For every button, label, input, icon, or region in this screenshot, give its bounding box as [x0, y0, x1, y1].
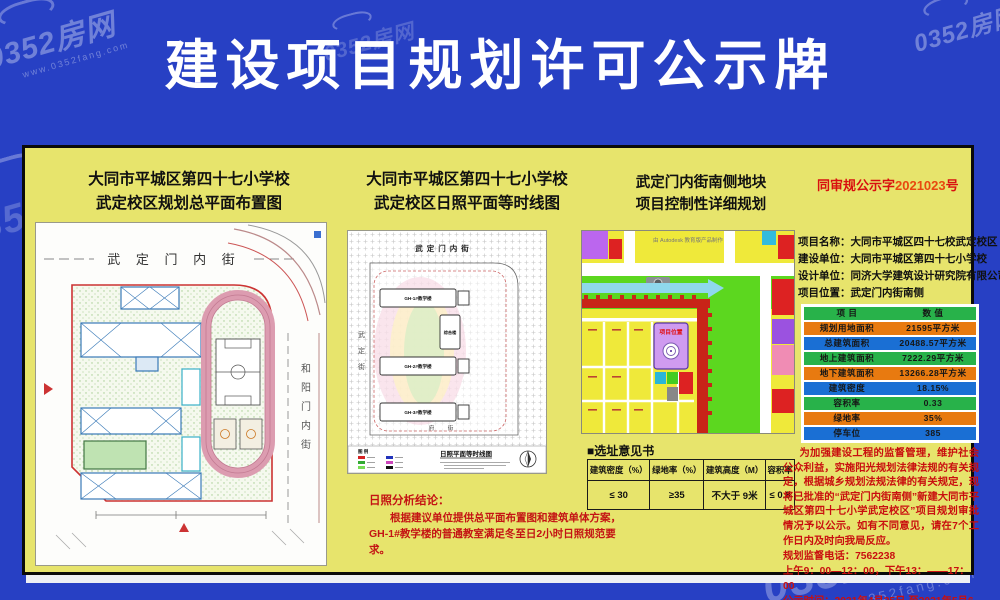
building-label-complex: 综合楼	[444, 329, 457, 336]
metrics-header-item: 项 目	[804, 307, 890, 320]
sunshine-conclusion-title: 日照分析结论：	[369, 492, 621, 508]
metric-value: 7222.29平方米	[890, 352, 976, 365]
table-row: 容积率 0.33	[804, 397, 976, 410]
opinion-value: ≤ 30	[588, 481, 650, 510]
metric-value: 13266.28平方米	[890, 367, 976, 380]
notice-hours: 上午9：00—12：00，下午13：——17：00	[783, 565, 979, 595]
sunshine-conclusion: 日照分析结论： 根据建议单位提供总平面布置图和建筑单体方案，GH-1#教学楼的普…	[369, 492, 621, 558]
page-title: 建设项目规划许可公示牌	[0, 24, 1000, 108]
opinion-value: 不大于 9米	[704, 481, 766, 510]
info-line-owner: 建设单位：大同市平城区第四十七小学校	[798, 251, 988, 268]
notice-phone: 规划监督电话：7562238	[783, 550, 979, 565]
legend-strip: 图 例 日照平面等时线图	[348, 446, 546, 473]
metric-value: 20488.57平方米	[890, 337, 976, 350]
sunshine-svg: 武定门内街 GH-1#教学楼 综合楼	[348, 231, 546, 473]
metric-label: 地下建筑面积	[804, 367, 890, 380]
table-row: 规划用地面积 21595平方米	[804, 322, 976, 335]
public-notice: 为加强建设工程的监督管理，维护社会公众利益，实施阳光规划法律法规的有关规定，根据…	[783, 447, 979, 600]
notice-period: 公示时间：2021年4月25日 至2021年5月6日	[783, 595, 979, 600]
table-row: 总建筑面积 20488.57平方米	[804, 337, 976, 350]
zoning-map: 由 Autodesk 教育版产品制作	[581, 230, 795, 434]
metric-value: 35%	[890, 412, 976, 425]
info-line-name: 项目名称：大同市平城区四十七校武定校区	[798, 234, 988, 251]
metric-value: 18.15%	[890, 382, 976, 395]
left-heading-line2: 武定校区规划总平面布置图	[43, 192, 335, 216]
street-label-right: 和阳门内街	[299, 363, 311, 458]
metric-value: 385	[890, 427, 976, 440]
car-swoosh-icon	[921, 0, 970, 20]
metric-label: 总建筑面积	[804, 337, 890, 350]
site-plan-svg: 武 定 门 内 街	[36, 223, 326, 565]
permit-prefix: 同审规公示字	[817, 178, 895, 193]
metric-label: 停车位	[804, 427, 890, 440]
table-row: 地上建筑面积 7222.29平方米	[804, 352, 976, 365]
opinion-value: ≥35	[650, 481, 704, 510]
notice-body: 为加强建设工程的监督管理，维护社会公众利益，实施阳光规划法律法规的有关规定，根据…	[783, 447, 979, 549]
sunshine-diagram: 武定门内街 GH-1#教学楼 综合楼	[347, 230, 547, 474]
metric-value: 0.33	[890, 397, 976, 410]
north-arrow-icon	[520, 451, 536, 467]
site-opinion-value-row: ≤ 30 ≥35 不大于 9米 ≤ 0.8	[588, 481, 795, 510]
building-label-gh3: GH-3#教学楼	[404, 409, 432, 416]
right-heading-line2: 项目控制性详细规划	[591, 194, 811, 216]
building-label-gh2: GH-2#教学楼	[404, 363, 432, 370]
project-site-label: 项目位置	[659, 328, 682, 336]
street-label-top: 武定门内街	[415, 243, 473, 253]
permit-number-stamp: 同审规公示字2021023号	[817, 175, 995, 194]
metric-label: 绿地率	[804, 412, 890, 425]
street-label-bottom: 府 街	[429, 424, 460, 432]
site-opinion-header-row: 建筑密度（%） 绿地率（%） 建筑高度（M） 容积率	[588, 460, 795, 481]
site-opinion-title: ■选址意见书	[587, 442, 654, 459]
legend-label: 图 例	[358, 448, 369, 455]
metric-label: 容积率	[804, 397, 890, 410]
opinion-header: 建筑密度（%）	[588, 460, 650, 481]
opinion-header: 建筑高度（M）	[704, 460, 766, 481]
permit-no: 2021023	[895, 178, 946, 193]
right-panel-heading: 武定门内街南侧地块 项目控制性详细规划	[591, 172, 811, 217]
street-label-top: 武 定 门 内 街	[107, 252, 240, 267]
table-row: 地下建筑面积 13266.28平方米	[804, 367, 976, 380]
metric-label: 地上建筑面积	[804, 352, 890, 365]
project-parcel: 项目位置	[654, 323, 688, 369]
info-line-designer: 设计单位：同济大学建筑设计研究院有限公司	[798, 268, 988, 285]
info-line-location: 项目位置：武定门内街南侧	[798, 285, 988, 302]
metrics-header-row: 项 目 数 值	[804, 307, 976, 320]
project-info: 项目名称：大同市平城区四十七校武定校区 建设单位：大同市平城区第四十七小学校 设…	[798, 234, 988, 302]
metric-label: 建筑密度	[804, 382, 890, 395]
autodesk-watermark: 由 Autodesk 教育版产品制作	[653, 236, 723, 244]
right-heading-line1: 武定门内街南侧地块	[591, 172, 811, 194]
middle-heading-line1: 大同市平城区第四十七小学校	[331, 168, 603, 192]
middle-heading-line2: 武定校区日照平面等时线图	[331, 192, 603, 216]
zoning-map-svg: 由 Autodesk 教育版产品制作	[582, 231, 794, 433]
east-strip-blocks	[772, 279, 794, 413]
site-opinion-table: 建筑密度（%） 绿地率（%） 建筑高度（M） 容积率 ≤ 30 ≥35 不大于 …	[587, 459, 795, 510]
metrics-header-value: 数 值	[890, 307, 976, 320]
notice-board-page: 0352房网 www.0352fang.com 0352房网 0352房网 03…	[0, 0, 1000, 600]
metric-label: 规划用地面积	[804, 322, 890, 335]
left-panel-heading: 大同市平城区第四十七小学校 武定校区规划总平面布置图	[43, 168, 335, 216]
corner-icon	[314, 231, 321, 238]
metric-value: 21595平方米	[890, 322, 976, 335]
notice-board: 大同市平城区第四十七小学校 武定校区规划总平面布置图 武 定 门 内 街	[22, 145, 974, 575]
metrics-table: 项 目 数 值 规划用地面积 21595平方米 总建筑面积 20488.57平方…	[801, 304, 979, 443]
permit-suffix: 号	[946, 178, 959, 193]
street-label-left: 武定街	[358, 330, 366, 379]
site-plan-drawing: 武 定 门 内 街	[35, 222, 327, 566]
diagram-title: 日照平面等时线图	[440, 449, 493, 458]
left-heading-line1: 大同市平城区第四十七小学校	[43, 168, 335, 192]
table-row: 绿地率 35%	[804, 412, 976, 425]
building-label-gh1: GH-1#教学楼	[404, 295, 432, 302]
table-row: 停车位 385	[804, 427, 976, 440]
sunshine-conclusion-body: 根据建议单位提供总平面布置图和建筑单体方案，GH-1#教学楼的普通教室满足冬至日…	[369, 511, 621, 558]
opinion-header: 绿地率（%）	[650, 460, 704, 481]
middle-panel-heading: 大同市平城区第四十七小学校 武定校区日照平面等时线图	[331, 168, 603, 216]
table-row: 建筑密度 18.15%	[804, 382, 976, 395]
